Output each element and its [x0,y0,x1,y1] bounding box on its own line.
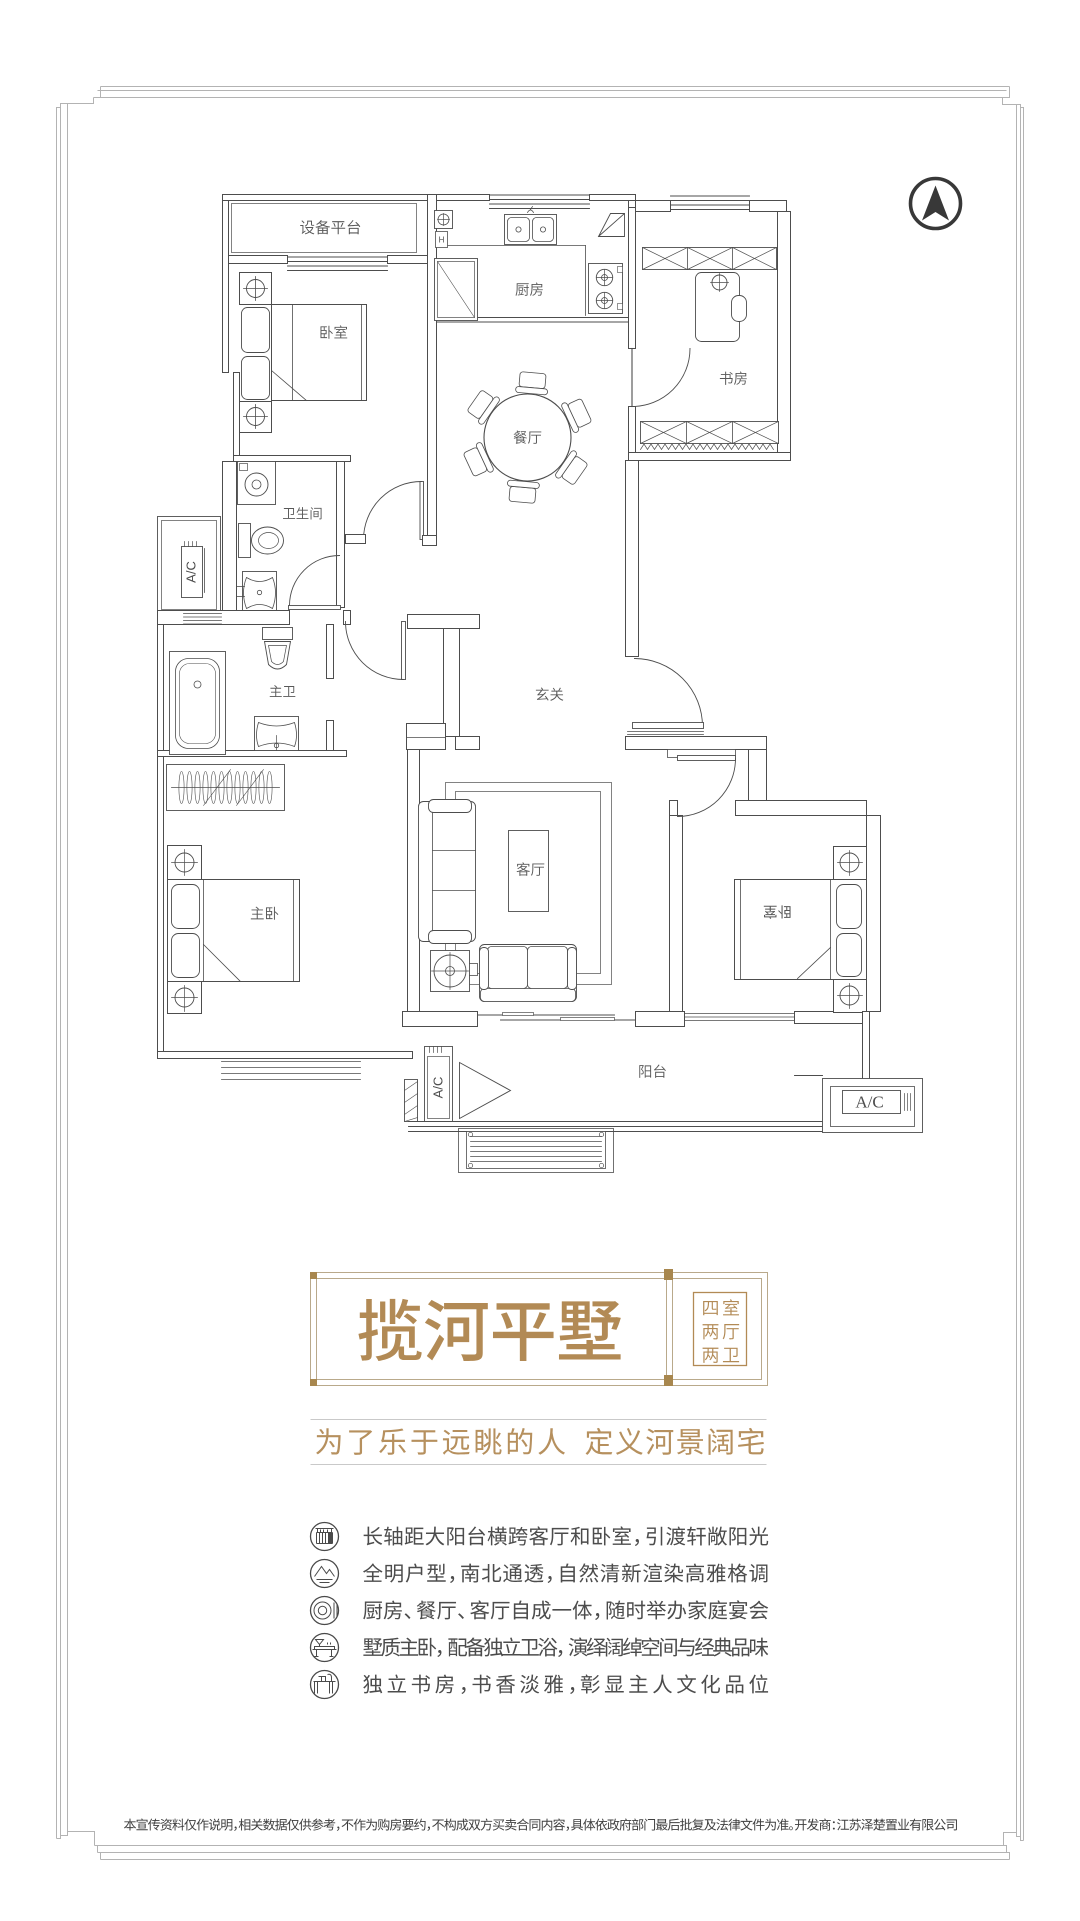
svg-text:A/C: A/C [855,1093,883,1112]
svg-text:A/C: A/C [431,1077,446,1099]
svg-text:A/C: A/C [184,561,199,583]
svg-text:H: H [439,236,445,245]
